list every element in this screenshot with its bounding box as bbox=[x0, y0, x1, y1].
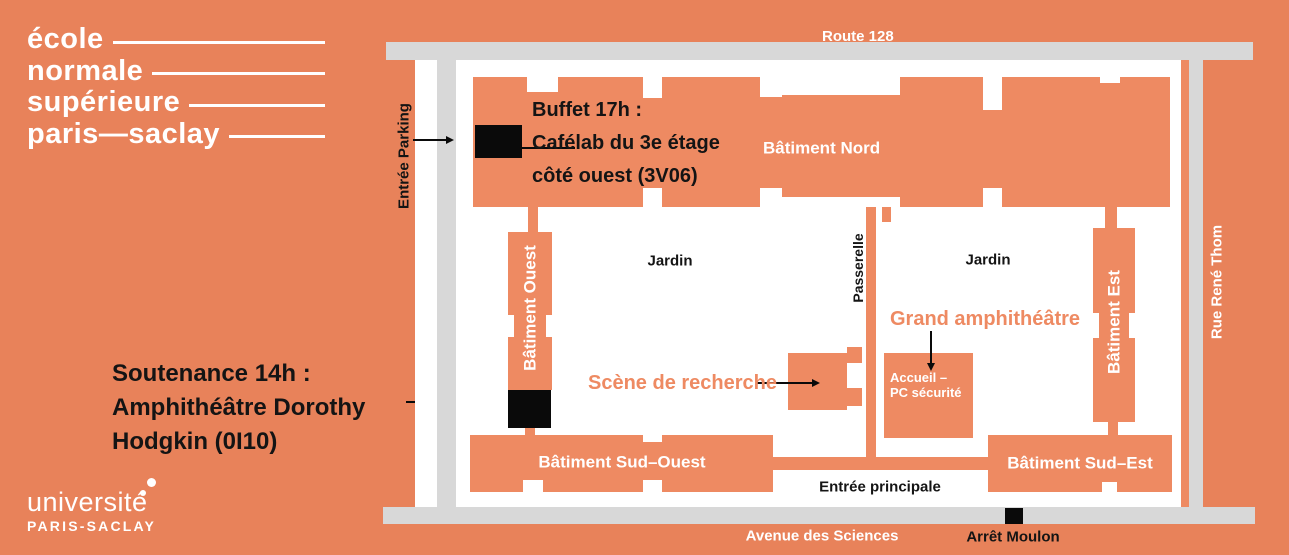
building-notch bbox=[760, 77, 782, 97]
soutenance-location-marker bbox=[508, 390, 551, 428]
arret-moulon-label: Arrêt Moulon bbox=[966, 530, 1059, 545]
link-nord-ouest bbox=[528, 207, 538, 232]
buffet-line: Cafélab du 3e étage bbox=[532, 127, 720, 160]
east-boundary-strip bbox=[1181, 60, 1189, 507]
soutenance-line: Amphithéâtre Dorothy bbox=[112, 391, 365, 425]
amphi-arrow-line bbox=[930, 331, 932, 365]
passerelle-walkway bbox=[866, 207, 876, 457]
building-notch bbox=[983, 77, 1002, 110]
batiment-sud-est-label: Bâtiment Sud–Est bbox=[1007, 455, 1152, 472]
accueil-pc-securite-label: Accueil – PC sécurité bbox=[890, 370, 962, 400]
road-avenue-des-sciences bbox=[383, 507, 1255, 524]
bus-stop-marker bbox=[1005, 508, 1023, 524]
building-notch bbox=[1093, 313, 1099, 338]
logo-rule bbox=[113, 41, 325, 44]
grand-amphitheatre-label: Grand amphithéâtre bbox=[890, 309, 1080, 329]
entree-parking-label: Entrée Parking bbox=[397, 103, 412, 209]
avenue-des-sciences-label: Avenue des Sciences bbox=[746, 529, 899, 544]
building-notch bbox=[1129, 313, 1135, 338]
logo-rule bbox=[189, 104, 325, 107]
logo-row: paris—saclay bbox=[27, 119, 325, 151]
link-nord-stub bbox=[882, 207, 891, 222]
batiment-nord-label: Bâtiment Nord bbox=[763, 140, 880, 157]
building-notch bbox=[983, 188, 1002, 207]
logo-word: normale bbox=[27, 55, 143, 88]
buffet-annotation: Buffet 17h : Cafélab du 3e étage côté ou… bbox=[532, 94, 720, 193]
road-parking-access bbox=[437, 60, 456, 507]
jardin-west-label: Jardin bbox=[647, 254, 692, 269]
road-rue-rene-thom bbox=[1189, 60, 1203, 507]
logo-rule bbox=[152, 72, 325, 75]
building-notch bbox=[782, 77, 900, 95]
batiment-ouest-label: Bâtiment Ouest bbox=[522, 245, 539, 371]
logo-word: école bbox=[27, 23, 104, 56]
batiment-est-label: Bâtiment Est bbox=[1106, 270, 1123, 374]
building-notch bbox=[527, 77, 558, 92]
building-scene-annex bbox=[847, 388, 862, 406]
scene-arrowhead bbox=[812, 379, 820, 387]
entree-parking-arrow-line bbox=[413, 139, 446, 141]
building-notch bbox=[1100, 77, 1120, 83]
building-notch bbox=[643, 480, 662, 492]
logo-row: normale bbox=[27, 56, 325, 88]
logo-row: école bbox=[27, 24, 325, 56]
buffet-location-marker bbox=[475, 125, 522, 158]
entree-parking-arrowhead bbox=[446, 136, 454, 144]
link-south-band bbox=[772, 457, 988, 470]
ups-logo-dot bbox=[147, 478, 156, 487]
building-notch bbox=[643, 435, 662, 442]
entree-principale-label: Entrée principale bbox=[819, 480, 941, 495]
building-notch bbox=[760, 188, 782, 207]
accueil-label-line: PC sécurité bbox=[890, 385, 962, 400]
scene-de-recherche-label: Scène de recherche bbox=[588, 373, 777, 393]
passerelle-label: Passerelle bbox=[851, 233, 865, 302]
batiment-sud-ouest-label: Bâtiment Sud–Ouest bbox=[538, 454, 705, 471]
campus-map-poster: école normale supérieure paris—saclay So… bbox=[0, 0, 1289, 555]
universite-paris-saclay-logo: université PARIS-SACLAY bbox=[27, 489, 156, 533]
link-est-sudest bbox=[1108, 422, 1118, 435]
buffet-line: Buffet 17h : bbox=[532, 94, 720, 127]
logo-word: paris—saclay bbox=[27, 118, 220, 151]
building-notch bbox=[523, 480, 543, 492]
building-scene-annex bbox=[847, 347, 862, 363]
link-nord-est bbox=[1105, 207, 1117, 228]
building-notch bbox=[1102, 482, 1117, 492]
rue-rene-thom-label: Rue René Thom bbox=[1210, 225, 1225, 339]
route-128-label: Route 128 bbox=[822, 29, 894, 44]
buffet-line: côté ouest (3V06) bbox=[532, 160, 720, 193]
logo-word: supérieure bbox=[27, 86, 180, 119]
ups-logo-dot bbox=[140, 490, 146, 496]
building-notch bbox=[508, 315, 514, 337]
soutenance-line: Soutenance 14h : bbox=[112, 357, 365, 391]
soutenance-line: Hodgkin (0I10) bbox=[112, 425, 365, 459]
jardin-east-label: Jardin bbox=[965, 253, 1010, 268]
accueil-label-line: Accueil – bbox=[890, 370, 962, 385]
logo-rule bbox=[229, 135, 325, 138]
road-route-128 bbox=[386, 42, 1253, 60]
logo-row: supérieure bbox=[27, 87, 325, 119]
ens-paris-saclay-logo: école normale supérieure paris—saclay bbox=[27, 24, 325, 150]
ups-logo-word: université bbox=[27, 489, 156, 516]
building-notch bbox=[782, 197, 900, 207]
ups-logo-subword: PARIS-SACLAY bbox=[27, 519, 156, 533]
building-notch bbox=[546, 315, 552, 337]
soutenance-annotation: Soutenance 14h : Amphithéâtre Dorothy Ho… bbox=[112, 357, 365, 459]
